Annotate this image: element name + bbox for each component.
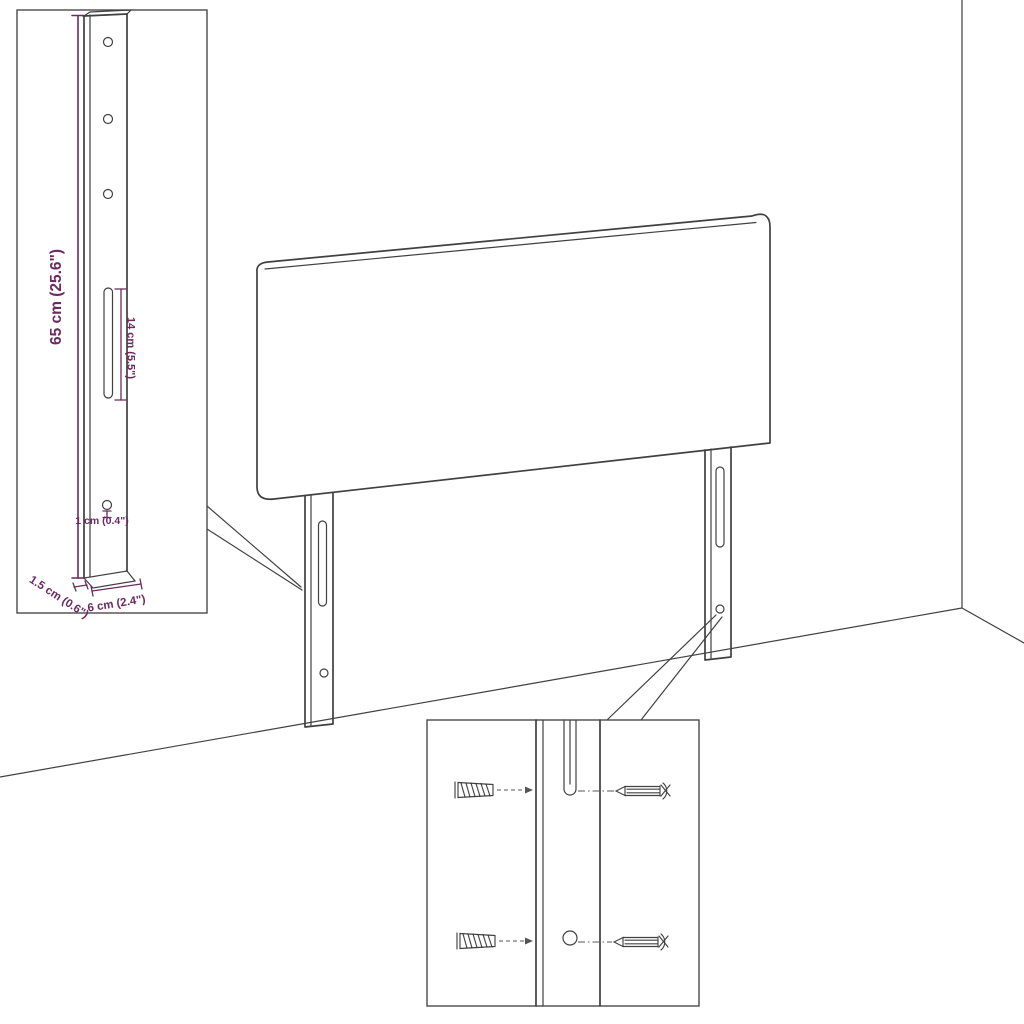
right-leg-outline bbox=[705, 447, 731, 660]
left-leg-hole bbox=[320, 669, 328, 677]
bracket-detail-inset: 65 cm (25.6") 14 cm (5.5") 1 cm (0.4") 1… bbox=[17, 10, 207, 621]
diagram-canvas: 65 cm (25.6") 14 cm (5.5") 1 cm (0.4") 1… bbox=[0, 0, 1024, 1024]
left-leg-slot bbox=[319, 521, 327, 606]
right-leg bbox=[705, 447, 731, 660]
headboard-panel-outline bbox=[257, 214, 770, 499]
hole-size-label: 1 cm (0.4") bbox=[75, 515, 128, 527]
right-floor-line bbox=[962, 608, 1024, 643]
screw-detail-box bbox=[427, 720, 699, 1006]
left-leg bbox=[305, 493, 333, 727]
headboard-assembly-diagram: 65 cm (25.6") 14 cm (5.5") 1 cm (0.4") 1… bbox=[0, 0, 1024, 1024]
callout-pointer-left bbox=[207, 506, 302, 590]
headboard-top-edge-line bbox=[265, 223, 756, 270]
right-leg-slot bbox=[716, 467, 724, 547]
headboard bbox=[257, 214, 770, 499]
bracket-height-label: 65 cm (25.6") bbox=[48, 249, 65, 345]
right-leg-hole bbox=[716, 605, 724, 613]
slot-length-label: 14 cm (5.5") bbox=[125, 317, 137, 379]
screw-detail-inset bbox=[427, 720, 699, 1006]
